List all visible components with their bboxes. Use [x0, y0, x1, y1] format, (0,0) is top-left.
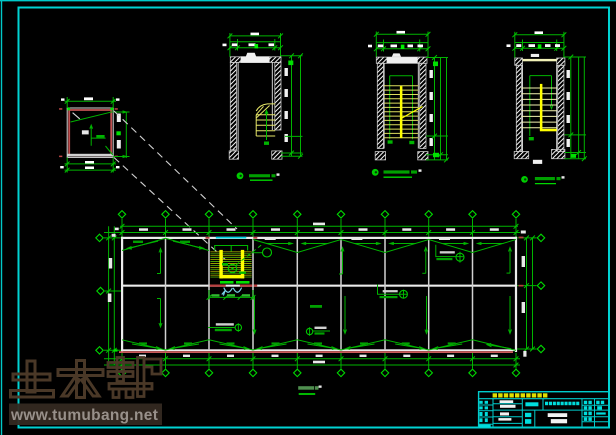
svg-text:www.tumubang.net: www.tumubang.net: [10, 407, 158, 424]
